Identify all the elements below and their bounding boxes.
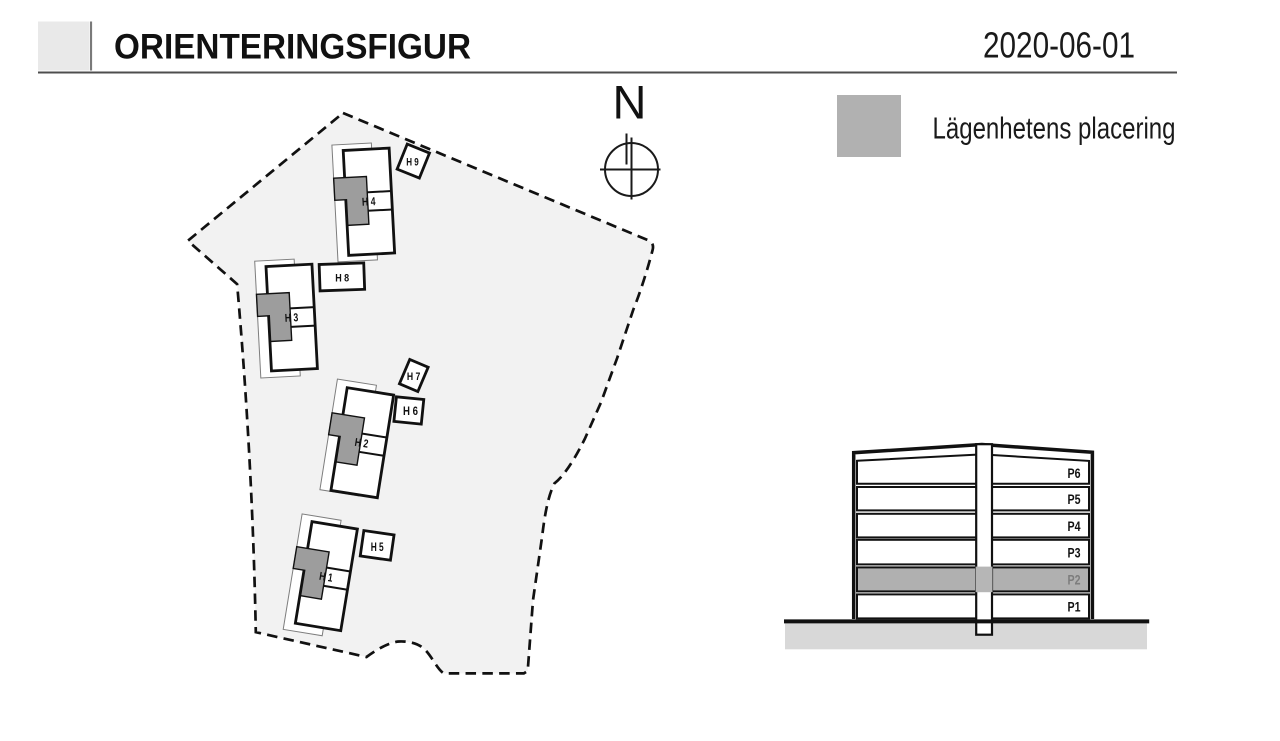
svg-text:H 5: H 5 [371, 542, 384, 554]
svg-text:H 3: H 3 [284, 312, 298, 325]
svg-text:P3: P3 [1068, 545, 1081, 560]
svg-text:P4: P4 [1068, 519, 1081, 534]
svg-text:H 7: H 7 [407, 371, 421, 383]
svg-text:ORIENTERINGSFIGUR: ORIENTERINGSFIGUR [114, 28, 471, 67]
svg-text:H 4: H 4 [362, 196, 377, 209]
svg-text:H 1: H 1 [318, 571, 334, 585]
svg-text:N: N [613, 76, 647, 129]
svg-text:P1: P1 [1068, 599, 1081, 614]
svg-text:H 2: H 2 [354, 437, 369, 451]
svg-text:P6: P6 [1068, 466, 1081, 481]
svg-text:2020-06-01: 2020-06-01 [983, 25, 1135, 66]
svg-text:Lägenhetens placering: Lägenhetens placering [933, 111, 1176, 146]
svg-text:H 6: H 6 [403, 406, 418, 418]
svg-text:H 9: H 9 [406, 156, 419, 168]
svg-text:P5: P5 [1068, 492, 1081, 507]
svg-text:P2: P2 [1068, 572, 1081, 587]
svg-text:H 8: H 8 [335, 273, 349, 285]
